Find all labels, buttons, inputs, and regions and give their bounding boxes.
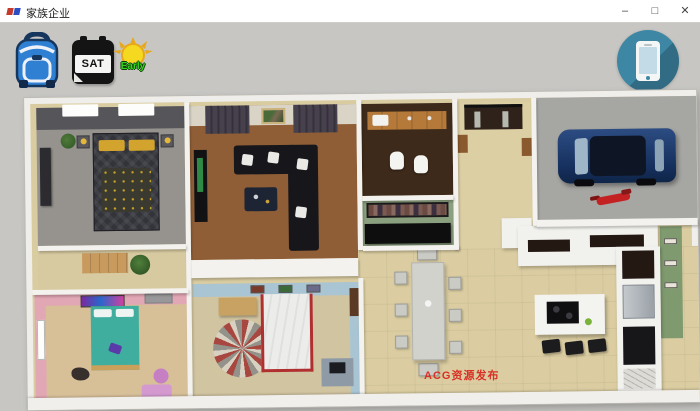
teal-bed[interactable] [91,306,140,371]
dining-chair[interactable] [448,277,461,290]
room-closet [362,199,454,250]
calendar-day-label: SAT [75,55,111,73]
dining-table[interactable] [411,262,445,360]
phone-body [636,41,660,81]
bar-stool[interactable] [541,339,560,354]
monitor [329,362,345,373]
computer-desk[interactable] [321,358,353,386]
sofa-top-section[interactable] [234,145,296,175]
nightstand-right[interactable] [161,134,174,147]
cushion [267,151,279,163]
sofa-side-section[interactable] [288,145,319,251]
dining-chair[interactable] [449,309,462,322]
bed-toy [108,342,122,354]
room-bathroom [361,103,453,196]
phone-screen [639,47,657,74]
lamp [81,138,87,144]
cushion [241,154,253,166]
window-title: 家族企业 [26,5,70,21]
oven[interactable] [623,326,655,364]
room-hallway [38,248,186,290]
dining-chair[interactable] [394,271,407,284]
calendar-ring [80,36,87,43]
room-kids-pink [35,292,191,404]
room-blue-bedroom [192,282,359,402]
coffee-table[interactable] [244,187,277,211]
wood-desk[interactable] [219,297,257,315]
pillow [129,140,155,151]
cushion [295,206,307,218]
blue-car[interactable] [558,128,677,183]
brown-door[interactable] [349,288,358,316]
dresser[interactable] [40,148,52,206]
vanity-counter[interactable] [367,111,446,130]
backpack-glyph [12,32,62,90]
calendar-icon[interactable]: SAT [72,40,114,84]
windshield [575,138,588,175]
title-bar[interactable]: 家族企业 – □ ✕ [0,0,700,23]
faucet [407,116,411,120]
bar-stool[interactable] [565,340,584,355]
green-apple [585,318,592,325]
master-accent-wall [36,106,184,130]
front-door[interactable] [464,104,522,130]
pillow [99,140,125,151]
faucet [427,116,431,120]
backpack-icon[interactable] [12,32,62,90]
kitchen-counter-side-run[interactable] [616,246,662,393]
curtains-left[interactable] [205,105,249,134]
phone-icon[interactable] [617,30,679,92]
window [37,320,45,360]
lamp [165,137,171,143]
pink-bin[interactable] [153,368,168,383]
curtains-right[interactable] [293,104,337,133]
wall-living-blue [191,258,358,278]
black-cabinet[interactable] [365,223,451,244]
app-window: 家族企业 – □ ✕ SAT [0,0,700,411]
room-master-bedroom [36,106,186,246]
wall-shelf [664,260,677,266]
car-roof [590,136,646,177]
wall-shelf [664,282,677,288]
counter-dark-top [528,239,570,252]
pillow [94,309,112,317]
dishwasher[interactable] [623,368,655,388]
game-viewport: SAT Early [0,24,700,411]
clothes-pile[interactable] [71,367,89,380]
toilet[interactable] [390,151,404,169]
maximize-button[interactable]: □ [640,0,670,23]
dining-chair[interactable] [449,341,462,354]
cooktop [547,301,579,323]
sink [372,115,388,126]
entry-cabinet[interactable] [522,138,532,156]
white-bed[interactable] [261,294,314,373]
dining-chair[interactable] [395,335,408,348]
close-button[interactable]: ✕ [670,0,700,23]
sun-glyph [113,37,153,63]
blanket [101,168,152,213]
gray-door[interactable] [145,293,173,303]
counter-dark-top [590,235,644,248]
window [118,104,154,116]
bar-stool[interactable] [587,338,606,353]
logo-blue-mark [13,8,20,15]
calendar-ring [99,36,106,43]
door-glass [474,112,480,128]
app-logo-icon [7,6,21,17]
nightstand-left[interactable] [77,135,90,148]
wall-shelf [664,238,677,244]
dining-chair[interactable] [395,303,408,316]
sun-icon[interactable] [113,37,153,63]
phone-speaker [644,44,652,46]
door-glass [502,111,508,127]
fridge[interactable] [622,284,654,318]
phone-home-button [646,76,650,80]
master-bed[interactable] [93,132,160,231]
wardrobe-rack[interactable] [366,202,448,218]
time-of-day-label: Early [110,61,156,72]
wall-picture [306,285,320,293]
entry-cabinet[interactable] [458,135,468,153]
moto-seat [621,188,632,195]
house-floorplan [24,90,700,410]
cushion [296,158,308,170]
kitchen-accent-wall [660,226,683,338]
room-garage [535,96,698,226]
toilet[interactable] [414,155,428,173]
pillow [116,309,134,317]
wall-picture [250,285,264,293]
floor-mat [82,253,128,274]
watermark-text: ACG资源发布 [424,367,499,383]
kitchen-island[interactable] [535,294,605,335]
minimize-button[interactable]: – [610,0,640,23]
plant[interactable] [130,255,150,275]
family-photo[interactable] [261,108,285,124]
wheel [574,179,594,186]
wall-picture [278,285,292,293]
window [62,104,98,116]
counter-dark-top [622,250,654,278]
calendar-page-curl [74,73,83,82]
wheel [636,178,656,185]
tv-stand[interactable] [194,150,208,222]
plant[interactable] [61,133,76,148]
tv-screen [197,158,203,192]
rear-window [655,139,664,171]
red-motorcycle[interactable] [589,187,635,211]
room-living [189,104,358,260]
window-controls: – □ ✕ [610,0,700,23]
